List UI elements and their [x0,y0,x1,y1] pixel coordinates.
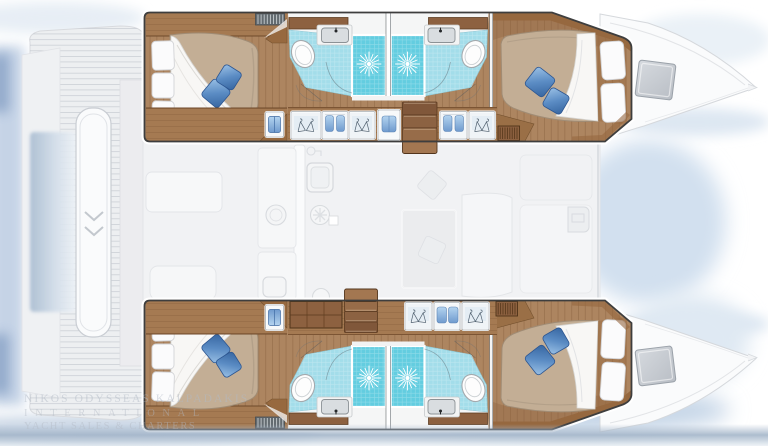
svg-text:INTERNATIONAL: INTERNATIONAL [24,408,207,419]
svg-text:NIKOS ODYSSEAS KALPADAKIS: NIKOS ODYSSEAS KALPADAKIS [24,393,249,405]
svg-text:YACHT SALES & CHARTERS: YACHT SALES & CHARTERS [24,421,196,432]
